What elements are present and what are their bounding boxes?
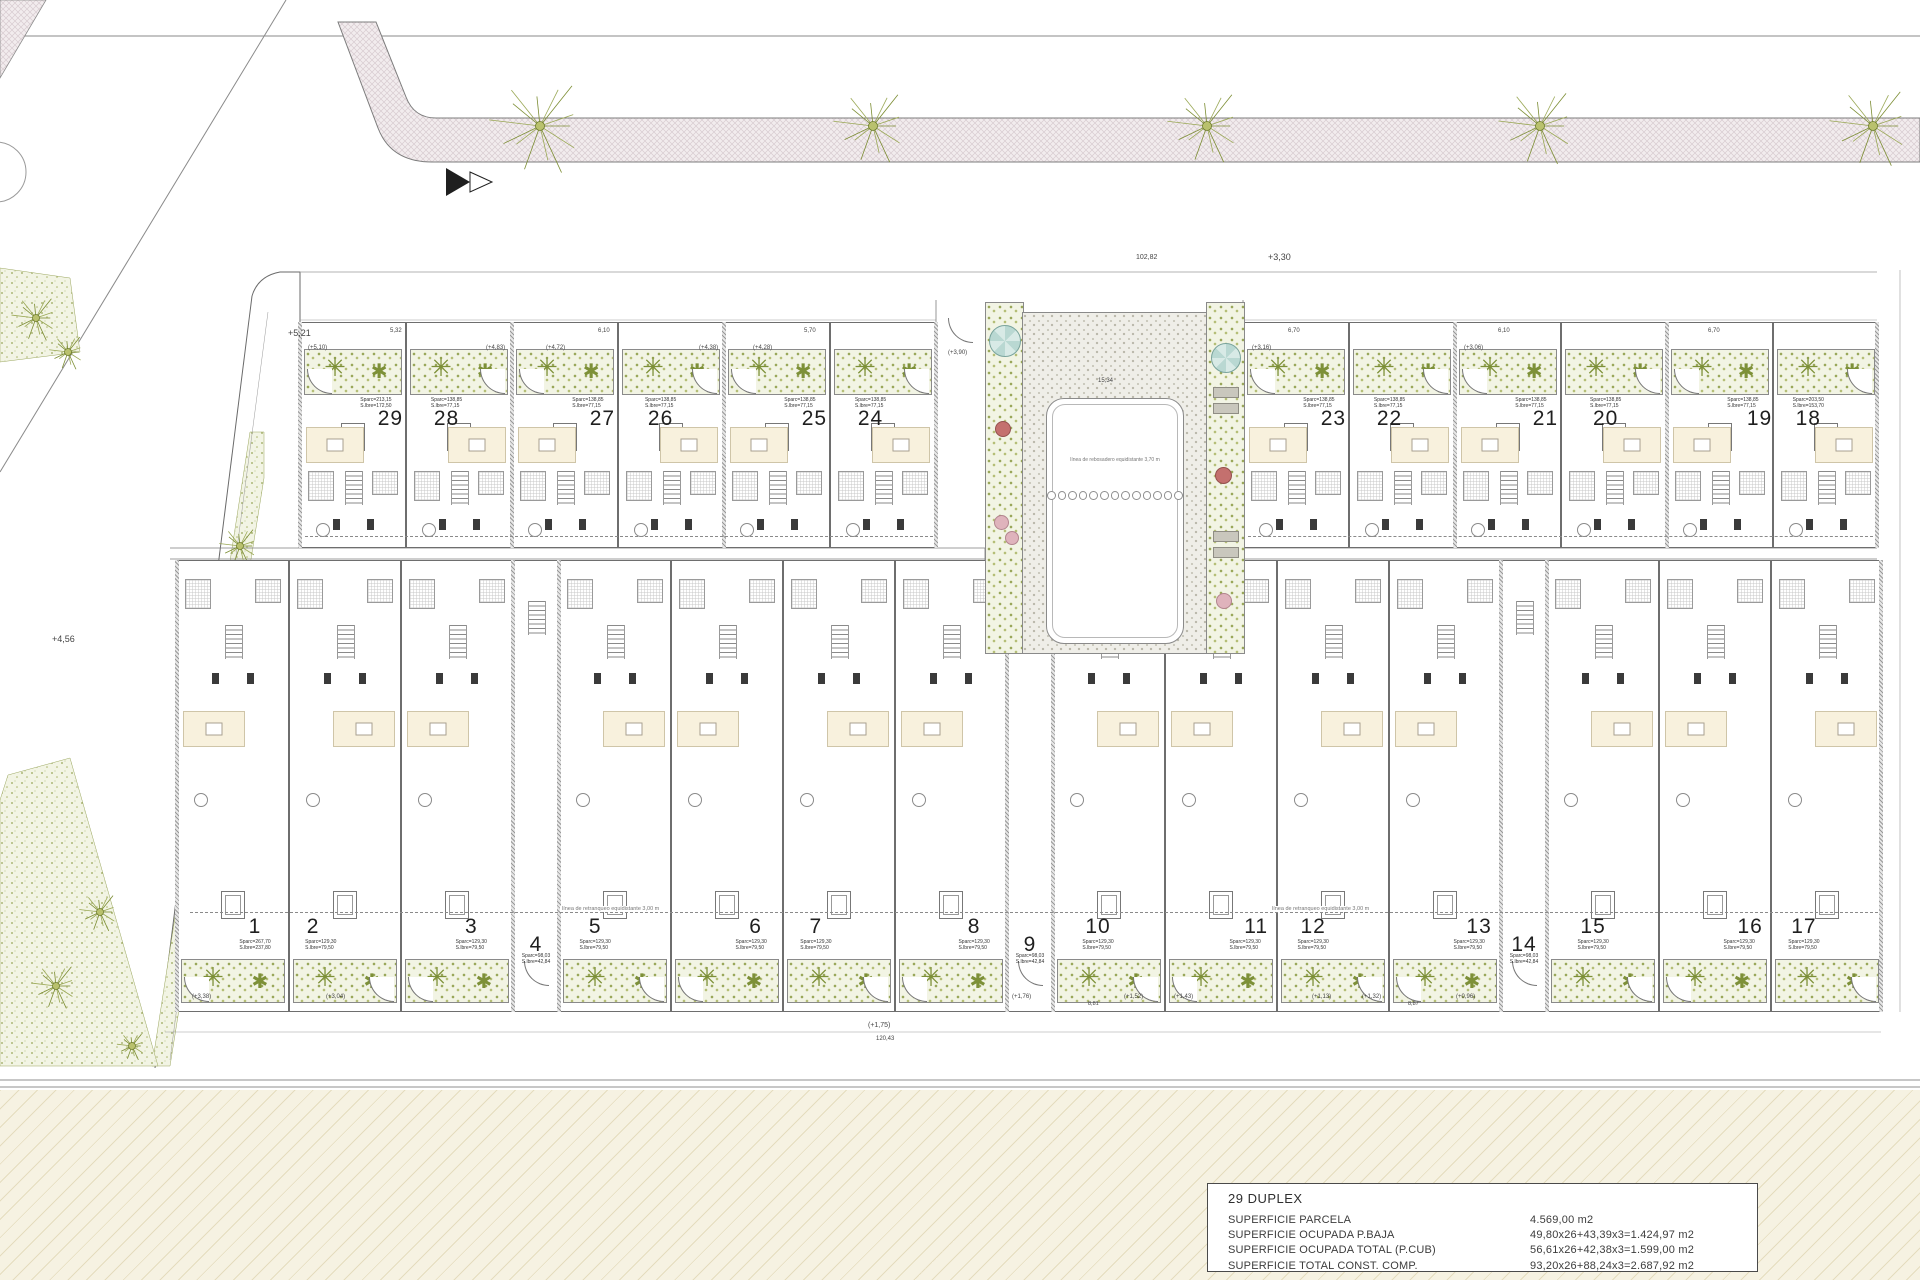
plant-icon: ✱ — [795, 362, 812, 382]
staircase — [1516, 601, 1534, 635]
staircase — [225, 625, 243, 659]
door-arc-icon — [904, 369, 929, 394]
unit-area-label: Sparc=98,03S.lbre=42,84 — [522, 953, 551, 965]
kitchen-fixture — [706, 673, 713, 684]
dim-label: 8,87 — [1408, 1001, 1419, 1007]
bathroom — [479, 579, 505, 603]
unit-number: 24 — [858, 407, 883, 431]
title-block: 29 DUPLEX SUPERFICIE PARCELA 4.569,00 m2… — [1207, 1183, 1758, 1272]
door-arc-icon — [408, 977, 433, 1002]
plant-icon: ✱ — [1738, 362, 1755, 382]
plant-icon: ✱ — [475, 972, 492, 992]
area-libre: S.lbre=79,50 — [800, 945, 831, 951]
living-room — [518, 427, 576, 463]
sunbed-icon — [1213, 403, 1239, 414]
dim-label: (+1,43) — [1174, 994, 1193, 1000]
table — [626, 723, 643, 736]
dim-label: (+0,96) — [1456, 994, 1475, 1000]
area-libre: S.lbre=77,15 — [1727, 403, 1758, 409]
plant-icon: ✳ — [1796, 964, 1818, 990]
unit-garden: ✳✱ — [1775, 959, 1879, 1003]
unit-number: 26 — [648, 407, 673, 431]
setback-note: línea de retranqueo equidistante 3,00 m — [560, 906, 661, 912]
kitchen-fixture — [1088, 673, 1095, 684]
party-wall — [298, 322, 302, 548]
bathroom — [1243, 579, 1269, 603]
kitchen-fixture — [439, 519, 446, 530]
plant-icon: ✳ — [584, 964, 606, 990]
table — [681, 439, 698, 452]
bathroom — [1421, 471, 1447, 495]
living-room — [603, 711, 665, 747]
patio-table — [418, 793, 432, 807]
parasol-icon — [989, 325, 1021, 357]
unit-garden: ✳✱ — [1393, 959, 1497, 1003]
unit-cell-15: ✳✱15Sparc=129,30S.lbre=79,50 — [1547, 560, 1659, 1012]
bathroom — [1355, 579, 1381, 603]
unit-number: 11 — [1244, 915, 1268, 939]
door-arc-icon — [369, 977, 394, 1002]
pool-lane-markers — [1047, 491, 1183, 500]
plant-icon: ✳ — [1585, 354, 1607, 380]
bathroom — [414, 471, 440, 501]
area-libre: S.lbre=77,15 — [1374, 403, 1405, 409]
kitchen-fixture — [1734, 519, 1741, 530]
dim-label: (+4,83) — [486, 345, 505, 351]
unit-cell-22: ✳✱22Sparc=138,85S.lbre=77,15 — [1349, 322, 1455, 548]
unit-area-label: Sparc=129,30S.lbre=79,50 — [580, 939, 611, 951]
staircase — [1288, 471, 1306, 505]
dim-label: (+5,10) — [308, 345, 327, 351]
door-arc-icon — [639, 977, 664, 1002]
bathroom — [1397, 579, 1423, 609]
plant-icon: ✳ — [1572, 964, 1594, 990]
kitchen-fixture — [863, 519, 870, 530]
kitchen-fixture — [897, 519, 904, 530]
dim-label: 102,82 — [1136, 254, 1157, 261]
unit-area-label: Sparc=129,30S.lbre=79,50 — [1577, 939, 1608, 951]
patio-table — [1676, 793, 1690, 807]
staircase — [875, 471, 893, 505]
plant-icon: ✱ — [1733, 972, 1750, 992]
patio-table — [1564, 793, 1578, 807]
living-room — [333, 711, 395, 747]
patio-table — [634, 523, 648, 537]
plant-icon: ✱ — [251, 972, 268, 992]
area-libre: S.lbre=79,50 — [958, 945, 989, 951]
party-wall — [1453, 322, 1457, 548]
unit-cell-29: ✳✱29Sparc=213,15S.lbre=172,50 — [300, 322, 406, 548]
kitchen-fixture — [1347, 673, 1354, 684]
terrace-door — [333, 891, 357, 919]
area-libre: S.lbre=79,50 — [1454, 945, 1485, 951]
dim-label: 5,70 — [804, 328, 816, 334]
unit-area-label: Sparc=138,85S.lbre=77,15 — [1515, 397, 1546, 409]
unit-garden: ✳✱ — [1565, 349, 1663, 395]
kitchen-fixture — [1276, 519, 1283, 530]
bathroom — [690, 471, 716, 495]
unit-area-label: Sparc=138,85S.lbre=77,15 — [784, 397, 815, 409]
dim-label: (+3,16) — [1252, 345, 1271, 351]
unit-area-label: Sparc=138,85S.lbre=77,15 — [1590, 397, 1621, 409]
plant-icon: ✱ — [371, 362, 388, 382]
kitchen-fixture — [1806, 673, 1813, 684]
area-libre: S.lbre=77,15 — [855, 403, 886, 409]
staircase — [1818, 471, 1836, 505]
unit-number: 18 — [1796, 407, 1821, 431]
flower-red-icon — [1215, 467, 1232, 484]
bathroom — [1467, 579, 1493, 603]
unit-cell-14: 14Sparc=98,03S.lbre=42,84 — [1501, 560, 1547, 1012]
table — [1270, 439, 1287, 452]
unit-area-label: Sparc=138,85S.lbre=77,15 — [1374, 397, 1405, 409]
staircase — [1606, 471, 1624, 505]
area-libre: S.lbre=42,84 — [522, 959, 551, 965]
patio-table — [1406, 793, 1420, 807]
kitchen-fixture — [757, 519, 764, 530]
door-arc-icon — [1462, 369, 1487, 394]
unit-number: 23 — [1321, 407, 1346, 431]
door-arc-icon — [1666, 977, 1691, 1002]
staircase — [449, 625, 467, 659]
kitchen-fixture — [1416, 519, 1423, 530]
staircase — [1394, 471, 1412, 505]
staircase — [663, 471, 681, 505]
table — [1412, 439, 1429, 452]
unit-number: 7 — [810, 915, 823, 939]
plant-icon: ✱ — [969, 972, 986, 992]
plant-icon: ✳ — [854, 354, 876, 380]
living-room — [730, 427, 788, 463]
door-arc-icon — [1250, 369, 1275, 394]
bathroom — [367, 579, 393, 603]
party-wall — [722, 322, 726, 548]
unit-garden: ✳✱ — [1671, 349, 1769, 395]
unit-garden: ✳✱ — [516, 349, 614, 395]
dim-label: (+3,06) — [1464, 345, 1483, 351]
door-arc-icon — [863, 977, 888, 1002]
setback-dash-lower — [190, 912, 1878, 913]
table — [206, 723, 223, 736]
bathroom — [1779, 579, 1805, 609]
lane-marker-icon — [1058, 491, 1067, 500]
area-libre: S.lbre=79,50 — [1577, 945, 1608, 951]
unit-number: 22 — [1377, 407, 1402, 431]
door-arc-icon — [1627, 977, 1652, 1002]
patio-table — [740, 523, 754, 537]
setback-dash-upper-left — [305, 536, 933, 537]
door-arc-icon — [480, 369, 505, 394]
unit-cell-1: ✳✱1Sparc=267,70S.lbre=237,80 — [177, 560, 289, 1012]
area-libre: S.lbre=77,15 — [1515, 403, 1546, 409]
dim-label: 6,10 — [1498, 328, 1510, 334]
unit-cell-24: ✳✱24Sparc=138,85S.lbre=77,15 — [830, 322, 936, 548]
sunbed-icon — [1213, 387, 1239, 398]
bathroom — [1463, 471, 1489, 501]
sunbed-icon — [1213, 547, 1239, 558]
kitchen-fixture — [1424, 673, 1431, 684]
area-libre: S.lbre=79,50 — [1082, 945, 1113, 951]
title-block-row: SUPERFICIE OCUPADA TOTAL (P.CUB) 56,61x2… — [1228, 1243, 1757, 1258]
kitchen-fixture — [791, 519, 798, 530]
staircase — [1500, 471, 1518, 505]
patio-table — [1789, 523, 1803, 537]
party-wall — [1499, 560, 1503, 1012]
kitchen-fixture — [545, 519, 552, 530]
pool-lane-text: línea de rebosadero equidistante 3,70 m — [1047, 457, 1183, 463]
unit-area-label: Sparc=129,30S.lbre=79,50 — [800, 939, 831, 951]
unit-garden: ✳✱ — [563, 959, 667, 1003]
living-room — [448, 427, 506, 463]
unit-area-label: Sparc=98,03S.lbre=42,84 — [1016, 953, 1045, 965]
staircase — [451, 471, 469, 505]
patio-table — [846, 523, 860, 537]
living-room — [407, 711, 469, 747]
unit-cell-3: ✳✱3Sparc=129,30S.lbre=79,50 — [401, 560, 513, 1012]
unit-number: 28 — [434, 407, 459, 431]
staircase — [1437, 625, 1455, 659]
staircase — [1595, 625, 1613, 659]
row-label: SUPERFICIE OCUPADA TOTAL (P.CUB) — [1228, 1243, 1530, 1258]
living-room — [306, 427, 364, 463]
setback-dash-upper-right — [1248, 536, 1873, 537]
party-wall — [934, 322, 938, 548]
unit-cell-21: ✳✱21Sparc=138,85S.lbre=77,15 — [1455, 322, 1561, 548]
unit-cell-25: ✳✱25Sparc=138,85S.lbre=77,15 — [724, 322, 830, 548]
door-arc-icon — [902, 977, 927, 1002]
bathroom — [1845, 471, 1871, 495]
kitchen-fixture — [1123, 673, 1130, 684]
bathroom — [297, 579, 323, 609]
staircase — [1707, 625, 1725, 659]
terrace-door — [1815, 891, 1839, 919]
kitchen-fixture — [1700, 519, 1707, 530]
party-wall — [1875, 322, 1879, 548]
unit-number: 16 — [1738, 915, 1763, 939]
west-street-edge — [0, 0, 286, 472]
lane-marker-icon — [1174, 491, 1183, 500]
unit-area-label: Sparc=138,85S.lbre=77,15 — [855, 397, 886, 409]
unit-area-label: Sparc=129,30S.lbre=79,50 — [1230, 939, 1261, 951]
lane-marker-icon — [1121, 491, 1130, 500]
terrace-door — [221, 891, 245, 919]
kitchen-fixture — [1841, 673, 1848, 684]
unit-area-label: Sparc=129,30S.lbre=79,50 — [1298, 939, 1329, 951]
unit-area-label: Sparc=129,30S.lbre=79,50 — [456, 939, 487, 951]
bathroom — [1527, 471, 1553, 495]
bathroom — [1737, 579, 1763, 603]
living-room — [1395, 711, 1457, 747]
unit-cell-20: ✳✱20Sparc=138,85S.lbre=77,15 — [1561, 322, 1667, 548]
unit-number: 3 — [465, 915, 478, 939]
unit-garden: ✳✱ — [1663, 959, 1767, 1003]
unit-number: 10 — [1085, 915, 1110, 939]
bathroom — [903, 579, 929, 609]
bathroom — [679, 579, 705, 609]
dim-label: (+3,38) — [192, 994, 211, 1000]
unit-number: 13 — [1466, 915, 1491, 939]
door-arc-icon — [678, 977, 703, 1002]
staircase — [337, 625, 355, 659]
plant-icon: ✱ — [1463, 972, 1480, 992]
unit-garden: ✳✱ — [787, 959, 891, 1003]
area-libre: S.lbre=79,50 — [1230, 945, 1261, 951]
unit-garden: ✳✱ — [410, 349, 508, 395]
row-label: SUPERFICIE TOTAL CONST. COMP. — [1228, 1259, 1530, 1274]
dim-label: (+4,38) — [699, 345, 718, 351]
unit-cell-18: ✳✱18Sparc=203,50S.lbre=153,70 — [1773, 322, 1879, 548]
table — [469, 439, 486, 452]
bathroom — [1625, 579, 1651, 603]
unit-area-label: Sparc=129,30S.lbre=79,50 — [1724, 939, 1755, 951]
plant-icon: ✳ — [1078, 964, 1100, 990]
patio-table — [1788, 793, 1802, 807]
kitchen-fixture — [1522, 519, 1529, 530]
lane-marker-icon — [1153, 491, 1162, 500]
dim-label: +4,56 — [52, 634, 75, 644]
living-room — [1815, 711, 1877, 747]
terrace-door — [827, 891, 851, 919]
unit-number: 19 — [1747, 407, 1772, 431]
living-room — [677, 711, 739, 747]
table — [1194, 723, 1211, 736]
unit-garden: ✳✱ — [622, 349, 720, 395]
bathroom — [409, 579, 435, 609]
living-room — [1097, 711, 1159, 747]
unit-area-label: Sparc=138,85S.lbre=77,15 — [431, 397, 462, 409]
bathroom — [1675, 471, 1701, 501]
table — [893, 439, 910, 452]
unit-number: 6 — [749, 915, 762, 939]
staircase — [719, 625, 737, 659]
north-flag-icon — [446, 168, 492, 196]
plant-icon: ✳ — [430, 354, 452, 380]
patio-table — [1683, 523, 1697, 537]
unit-number: 21 — [1533, 407, 1558, 431]
plant-icon: ✱ — [1239, 972, 1256, 992]
patio-table — [1471, 523, 1485, 537]
patio-table — [316, 523, 330, 537]
bathroom — [796, 471, 822, 495]
unit-area-label: Sparc=129,30S.lbre=79,50 — [1788, 939, 1819, 951]
area-libre: S.lbre=42,84 — [1510, 959, 1539, 965]
unit-area-label: Sparc=213,15S.lbre=172,50 — [360, 397, 391, 409]
door-arc-icon — [1674, 369, 1699, 394]
title-block-title: 29 DUPLEX — [1228, 1191, 1757, 1206]
row-value: 93,20x26+88,24x3=2.687,92 m2 — [1530, 1259, 1757, 1274]
bathroom — [791, 579, 817, 609]
bathroom — [520, 471, 546, 501]
dim-label: (+1,32) — [1362, 994, 1381, 1000]
bathroom — [1315, 471, 1341, 495]
unit-area-label: Sparc=138,85S.lbre=77,15 — [572, 397, 603, 409]
dim-label: (+1,52) — [1124, 994, 1143, 1000]
patio-table — [912, 793, 926, 807]
southwest-landscape-patch — [0, 758, 158, 1066]
table — [1418, 723, 1435, 736]
kitchen-fixture — [1694, 673, 1701, 684]
unit-cell-27: ✳✱27Sparc=138,85S.lbre=77,15 — [512, 322, 618, 548]
area-libre: S.lbre=79,50 — [456, 945, 487, 951]
kitchen-fixture — [1594, 519, 1601, 530]
unit-cell-12: ✳✱12Sparc=129,30S.lbre=79,50 — [1277, 560, 1389, 1012]
bathroom — [1251, 471, 1277, 501]
area-libre: S.lbre=77,15 — [572, 403, 603, 409]
bathroom — [255, 579, 281, 603]
plant-icon: ✱ — [1526, 362, 1543, 382]
patio-table — [1070, 793, 1084, 807]
table — [1624, 439, 1641, 452]
pool-garden-west — [985, 302, 1024, 654]
area-libre: S.lbre=79,50 — [1788, 945, 1819, 951]
unit-garden: ✳✱ — [405, 959, 509, 1003]
door-arc-icon — [1635, 369, 1660, 394]
kitchen-fixture — [651, 519, 658, 530]
parasol-icon — [1211, 343, 1241, 373]
unit-garden: ✳✱ — [834, 349, 932, 395]
unit-garden: ✳✱ — [1353, 349, 1451, 395]
door-arc-icon — [307, 369, 332, 394]
unit-number: 15 — [1580, 915, 1605, 939]
patio-table — [1577, 523, 1591, 537]
party-wall — [511, 560, 515, 1012]
staircase — [769, 471, 787, 505]
bathroom — [637, 579, 663, 603]
patio-table — [194, 793, 208, 807]
dim-label: 120,43 — [876, 1036, 894, 1042]
flower-red-icon — [995, 421, 1011, 437]
plant-icon: ✳ — [808, 964, 830, 990]
unit-number: 1 — [249, 915, 262, 939]
left-edge-arc — [0, 142, 26, 202]
door-arc-icon — [1423, 369, 1448, 394]
table — [1482, 439, 1499, 452]
unit-area-label: Sparc=129,30S.lbre=79,50 — [1454, 939, 1485, 951]
staircase — [831, 625, 849, 659]
unit-cell-28: ✳✱28Sparc=138,85S.lbre=77,15 — [406, 322, 512, 548]
unit-area-label: Sparc=98,03S.lbre=42,84 — [1510, 953, 1539, 965]
unit-number: 5 — [589, 915, 602, 939]
table — [1344, 723, 1361, 736]
dim-label: (+3,04) — [326, 994, 345, 1000]
lane-marker-icon — [1132, 491, 1141, 500]
unit-number: 27 — [590, 407, 615, 431]
unit-number: 12 — [1301, 915, 1326, 939]
kitchen-fixture — [1310, 519, 1317, 530]
dim-label: +5,21 — [288, 328, 311, 338]
bathroom — [1667, 579, 1693, 609]
unit-garden: ✳✱ — [1459, 349, 1557, 395]
unit-number: 20 — [1593, 407, 1618, 431]
setback-note: línea de retranqueo equidistante 3,00 m — [1270, 906, 1371, 912]
area-libre: S.lbre=77,15 — [645, 403, 676, 409]
area-libre: S.lbre=79,50 — [1724, 945, 1755, 951]
flower-pink-icon — [1216, 593, 1232, 609]
unit-garden: ✳✱ — [728, 349, 826, 395]
unit-garden: ✳✱ — [1247, 349, 1345, 395]
kitchen-fixture — [1628, 519, 1635, 530]
staircase — [528, 601, 546, 635]
north-sidewalk-band — [338, 22, 1920, 162]
patio-table — [1182, 793, 1196, 807]
party-wall — [510, 322, 514, 548]
kitchen-fixture — [247, 673, 254, 684]
unit-number: 29 — [378, 407, 403, 431]
kitchen-fixture — [1382, 519, 1389, 530]
dim-label: +3,30 — [1268, 252, 1291, 262]
unit-area-label: Sparc=138,85S.lbre=77,15 — [645, 397, 676, 409]
row-value: 4.569,00 m2 — [1530, 1213, 1757, 1228]
